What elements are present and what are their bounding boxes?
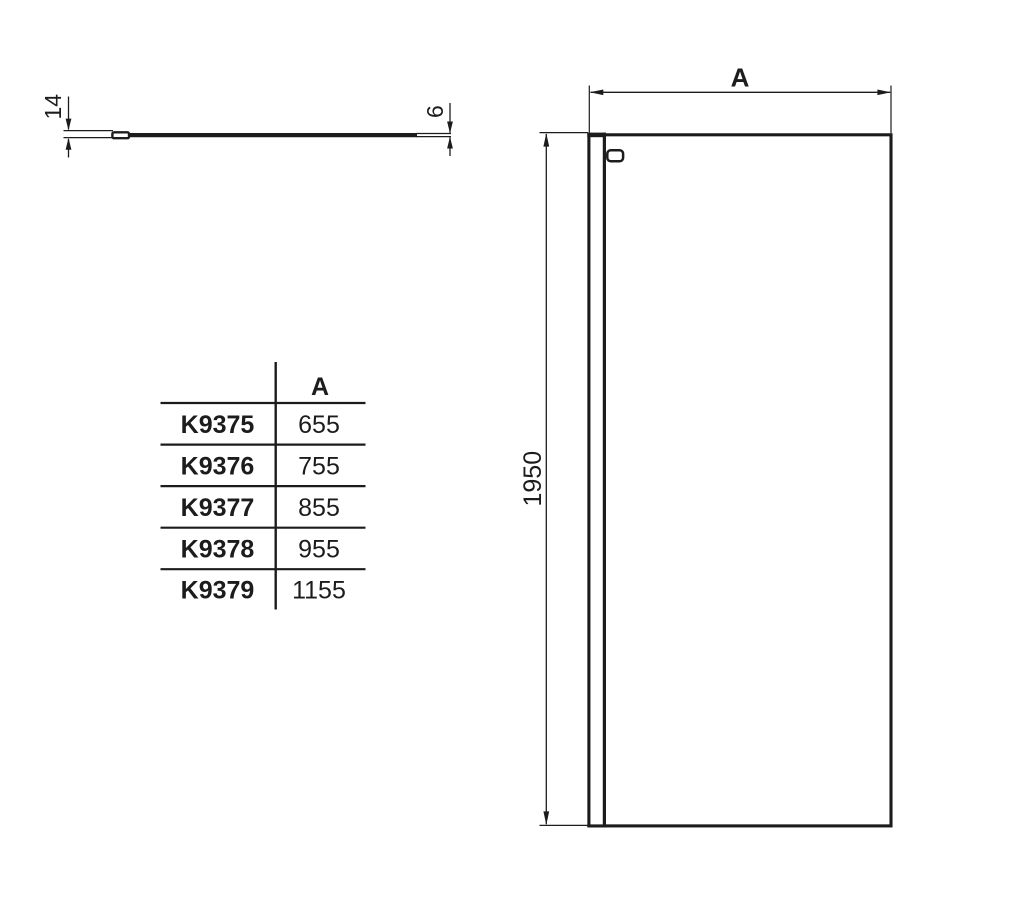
svg-text:755: 755 <box>298 453 340 481</box>
svg-text:A: A <box>731 63 750 93</box>
svg-text:1155: 1155 <box>292 577 346 605</box>
svg-text:1950: 1950 <box>519 451 547 507</box>
svg-text:K9375: K9375 <box>181 411 255 439</box>
svg-text:K9376: K9376 <box>181 453 255 481</box>
svg-text:K9379: K9379 <box>181 577 255 605</box>
svg-text:955: 955 <box>298 536 340 564</box>
svg-text:K9377: K9377 <box>181 494 255 522</box>
svg-text:855: 855 <box>298 494 340 522</box>
svg-text:14: 14 <box>40 94 66 120</box>
svg-text:6: 6 <box>422 105 448 118</box>
svg-text:655: 655 <box>298 411 340 439</box>
svg-text:K9378: K9378 <box>181 536 255 564</box>
svg-text:A: A <box>311 373 329 401</box>
